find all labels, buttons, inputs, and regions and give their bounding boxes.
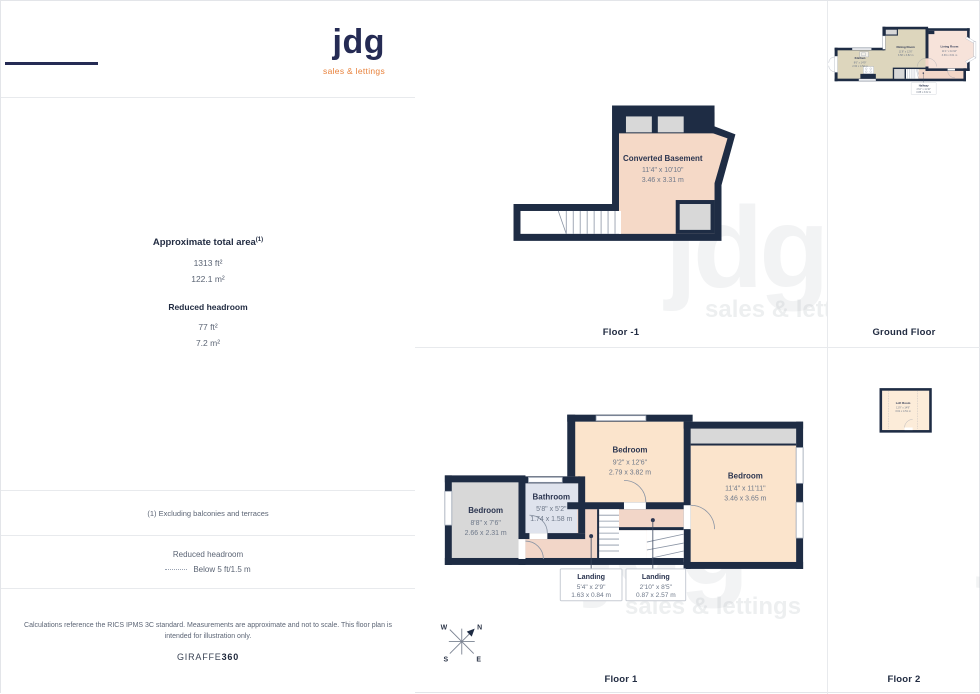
svg-text:Bedroom: Bedroom <box>468 506 503 515</box>
svg-text:0.87 x 2.57 m: 0.87 x 2.57 m <box>636 592 676 599</box>
room-label-loft: Loft Room 11'9" x 14'9" 3.61 x 4.51 m <box>895 401 911 413</box>
giraffe360-brand: GIRAFFE360 <box>177 652 239 662</box>
room-name: Converted Basement <box>623 154 703 163</box>
room-hallway <box>919 70 965 80</box>
compass: N E S W <box>441 625 483 664</box>
french-door-arc <box>829 57 835 63</box>
french-door-arc <box>829 66 835 72</box>
disclaimer-text: Calculations reference the RICS IPMS 3C … <box>13 621 403 643</box>
logo-rule <box>5 62 98 65</box>
svg-text:2.79 x 3.82 m: 2.79 x 3.82 m <box>609 469 651 476</box>
floorplan-floor1: Bedroom 9'2" x 12'6" 2.79 x 3.82 m Bedro… <box>415 348 827 692</box>
corridor <box>525 539 578 560</box>
room-living <box>927 30 969 70</box>
logo-wordmark: jdg <box>333 25 385 59</box>
floor-label-ground: Ground Floor <box>828 327 980 338</box>
floorplan-sheet: jdg sales & lettings <box>0 0 980 693</box>
sidebar: jdg sales & lettings Approximate total a… <box>1 1 415 694</box>
room-label-bedroom-mid: Bedroom 9'2" x 12'6" 2.79 x 3.82 m <box>609 445 651 476</box>
svg-text:2'10" x 8'5": 2'10" x 8'5" <box>640 584 673 591</box>
room-label-bedroom-left: Bedroom 8'8" x 7'6" 2.66 x 2.31 m <box>465 506 507 537</box>
staircase <box>520 211 621 234</box>
reduced-headroom-heading: Reduced headroom <box>168 302 247 312</box>
svg-text:11'4" x 11'11": 11'4" x 11'11" <box>725 485 766 492</box>
total-area-m: 122.1 m² <box>191 271 225 287</box>
svg-text:8'8" x 7'6": 8'8" x 7'6" <box>470 520 501 527</box>
svg-text:1.63 x 0.84 m: 1.63 x 0.84 m <box>571 592 611 599</box>
compass-w: W <box>441 625 448 632</box>
legend-title: Reduced headroom <box>173 550 243 559</box>
svg-text:2.66 x 2.31 m: 2.66 x 2.31 m <box>465 530 507 537</box>
floorplan-ground: Kitchen 8'6" x 14'9" 2.60 x 4.52 m Dinin… <box>828 1 980 129</box>
wardrobe-strip <box>691 429 796 445</box>
disclaimer-block: Calculations reference the RICS IPMS 3C … <box>1 589 415 694</box>
svg-text:Loft Room: Loft Room <box>896 401 911 405</box>
panel-floor1: jdg sales & lettings <box>415 348 828 694</box>
svg-text:Bathroom: Bathroom <box>533 492 571 501</box>
svg-text:9'2" x 12'6": 9'2" x 12'6" <box>613 459 648 466</box>
svg-text:2'10" x 11'10": 2'10" x 11'10" <box>917 88 932 91</box>
svg-text:Bedroom: Bedroom <box>612 445 647 454</box>
svg-text:Bedroom: Bedroom <box>728 471 763 480</box>
svg-text:Dining Room: Dining Room <box>897 45 916 49</box>
room-label-dining: Dining Room 11'8" x 12'6" 3.58 x 3.82 m <box>897 45 916 57</box>
svg-text:5'4" x 2'9": 5'4" x 2'9" <box>577 584 606 591</box>
staircase <box>906 69 919 79</box>
room-dims-m: 3.46 x 3.31 m <box>642 177 684 184</box>
svg-text:5'8" x 5'2": 5'8" x 5'2" <box>536 506 567 513</box>
room-label-living: Living Room 11'1" x 11'10" 3.39 x 3.61 m <box>941 45 959 57</box>
svg-text:3.46 x 3.65 m: 3.46 x 3.65 m <box>724 495 766 502</box>
legend-value: Below 5 ft/1.5 m <box>193 565 250 574</box>
footnote-marker: (1) <box>256 237 263 243</box>
room-dims-ft: 11'4" x 10'10" <box>642 167 684 174</box>
svg-text:Landing: Landing <box>642 573 670 581</box>
svg-text:Living Room: Living Room <box>941 45 959 49</box>
area-summary: Approximate total area(1) 1313 ft² 122.1… <box>1 98 415 491</box>
brand-logo: jdg sales & lettings <box>1 1 415 98</box>
floor-label-1: Floor 1 <box>415 674 827 685</box>
panel-floor-minus1: jdg sales & lettings <box>415 1 828 348</box>
svg-text:0.88 x 3.62 m: 0.88 x 3.62 m <box>916 91 931 94</box>
floorplan-floor2: Loft Room 11'9" x 14'9" 3.61 x 4.51 m <box>828 348 980 475</box>
reduced-headroom-m: 7.2 m² <box>196 335 220 351</box>
compass-e: E <box>476 656 481 663</box>
total-area-ft: 1313 ft² <box>194 255 223 271</box>
svg-text:1.74 x 1.58 m: 1.74 x 1.58 m <box>530 516 572 523</box>
svg-text:Kitchen: Kitchen <box>855 56 866 60</box>
floorplan-basement: Converted Basement 11'4" x 10'10" 3.46 x… <box>415 1 827 346</box>
svg-text:Landing: Landing <box>577 573 605 581</box>
compass-s: S <box>444 656 449 663</box>
panel-floor2: jdg sales & lettings Loft Room 11'9" x 1… <box>828 348 980 694</box>
room-label-bedroom-right: Bedroom 11'4" x 11'11" 3.46 x 3.65 m <box>724 471 766 502</box>
area-footnote: (1) Excluding balconies and terraces <box>1 491 415 536</box>
room-label-bathroom: Bathroom 5'8" x 5'2" 1.74 x 1.58 m <box>530 492 572 523</box>
logo-tagline: sales & lettings <box>323 66 385 76</box>
headroom-legend: Reduced headroom Below 5 ft/1.5 m <box>1 536 415 589</box>
dotted-line-swatch <box>165 569 187 570</box>
compass-n: N <box>477 625 482 632</box>
reduced-headroom-ft: 77 ft² <box>198 319 217 335</box>
floor-label-2: Floor 2 <box>828 674 980 685</box>
total-area-heading: Approximate total area(1) <box>153 237 263 248</box>
floor-label-minus1: Floor -1 <box>415 327 827 338</box>
panel-ground-floor: jdg sales & lettings <box>828 1 980 348</box>
